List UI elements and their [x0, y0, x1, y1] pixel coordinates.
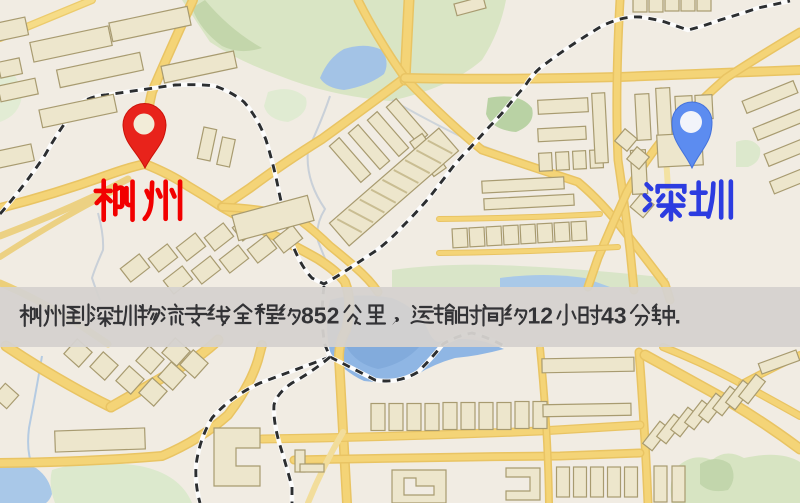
svg-text:852: 852 — [301, 303, 339, 329]
svg-text:.: . — [675, 303, 681, 329]
svg-text:43: 43 — [601, 303, 627, 329]
svg-text:12: 12 — [528, 303, 554, 329]
